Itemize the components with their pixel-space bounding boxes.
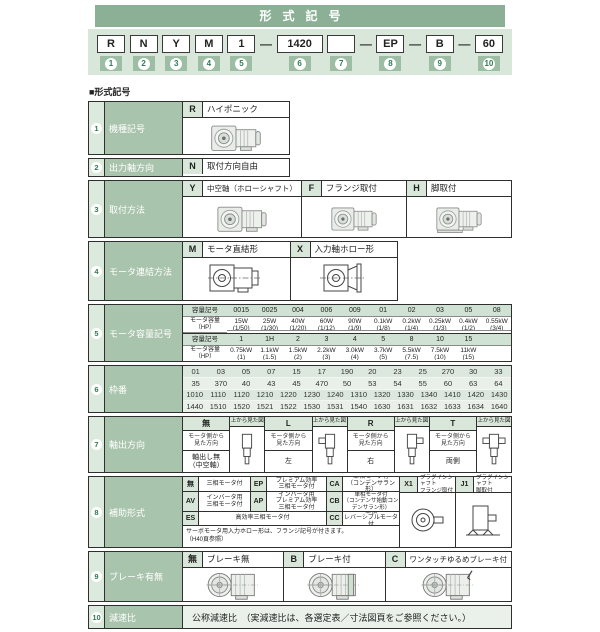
frame-number: 15 bbox=[284, 367, 309, 376]
brake-option-with: B ブレーキ付 bbox=[284, 552, 385, 601]
row-mounting-method: 3 取付方法 Y 中空軸（ホローシャフト） F フランジ取付 bbox=[88, 180, 512, 238]
capacity-code: 3 bbox=[312, 334, 340, 346]
frame-number: 23 bbox=[385, 367, 410, 376]
option-code: Y bbox=[183, 181, 203, 196]
frame-number: 25 bbox=[410, 367, 435, 376]
frame-number: 1530 bbox=[300, 402, 323, 411]
row-label: 出力軸方向 bbox=[105, 159, 183, 176]
capacity-value: 25W(1/30) bbox=[255, 317, 283, 331]
aux-code: X1 bbox=[400, 477, 418, 492]
top-view-caption: 上から見た図 bbox=[230, 417, 264, 427]
row-type-symbol: 1 機種記号 R ハイポニック bbox=[88, 101, 512, 155]
direction-value: 右 bbox=[348, 451, 394, 472]
aux-code: J1 bbox=[456, 477, 474, 492]
row-label: 取付方法 bbox=[105, 181, 183, 237]
code-seg-8: EP 8 bbox=[376, 35, 404, 71]
capacity-value: 0.4kW(1/2) bbox=[454, 317, 482, 331]
frame-number: 64 bbox=[486, 379, 511, 388]
capacity-value: 7.5kW(10) bbox=[426, 346, 454, 360]
frame-number: 1230 bbox=[300, 390, 323, 399]
row-number-9: 9 bbox=[89, 552, 105, 601]
top-view-caption: 上から見た図 bbox=[395, 417, 429, 427]
code-seg-3: Y 3 bbox=[162, 35, 190, 71]
aux-desc: 単相 レバーシブルモータ付 bbox=[343, 512, 399, 526]
option-code: F bbox=[302, 181, 322, 196]
aux-desc: 単相モータ付 （コンデンサ始動コンデンサラン形） bbox=[343, 492, 399, 512]
row-number-3: 3 bbox=[89, 181, 105, 237]
aux-desc: インバータ用 プレミアム効率 三相モータ付 bbox=[267, 492, 327, 512]
direction-option-both: T モータ側から 見た方向 両側 上から見た図 bbox=[430, 417, 511, 472]
option-code: M bbox=[183, 242, 203, 257]
capacity-value: 11kW(15) bbox=[454, 346, 482, 360]
one-touch-brake-motor-image bbox=[386, 568, 512, 601]
code-box-8: EP bbox=[376, 35, 404, 53]
code-box-4: M bbox=[195, 35, 223, 53]
frame-number: 470 bbox=[309, 379, 334, 388]
shaft-diagram-none bbox=[230, 427, 264, 472]
brake-option-one-touch: C ワンタッチゆるめブレーキ付 bbox=[386, 552, 512, 601]
row-label: 機種記号 bbox=[105, 102, 183, 154]
code-badge-1: 1 bbox=[100, 56, 122, 71]
option-desc: 取付方向自由 bbox=[203, 159, 262, 174]
direction-code: L bbox=[265, 417, 311, 431]
capacity-value: 2.2kW(3) bbox=[312, 346, 340, 360]
brake-option-none: 無 ブレーキ無 bbox=[183, 552, 284, 601]
coupling-option-hollow-input: X 入力軸ホロー形 bbox=[291, 242, 398, 300]
frame-number: 43 bbox=[259, 379, 284, 388]
code-badge-6: 6 bbox=[289, 56, 311, 71]
code-box-6: 1420 bbox=[277, 35, 323, 53]
row-label: モータ容量記号 bbox=[105, 305, 183, 361]
code-seg-2: N 2 bbox=[130, 35, 158, 71]
frame-number: 33 bbox=[486, 367, 511, 376]
hyponic-motor-image bbox=[183, 118, 289, 154]
capacity-code-header: 容量記号 bbox=[183, 334, 227, 346]
hollow-shaft-motor-image bbox=[183, 197, 301, 237]
dash-separator: — bbox=[260, 35, 272, 54]
frame-number: 370 bbox=[208, 379, 233, 388]
row-number-6: 6 bbox=[89, 366, 105, 412]
capacity-code: 0015 bbox=[227, 305, 255, 317]
capacity-value: 3.0kW(4) bbox=[341, 346, 369, 360]
aux-desc: 三相モータ付 bbox=[199, 477, 251, 492]
hollow-input-drawing bbox=[291, 258, 398, 300]
aux-code: EP bbox=[251, 477, 267, 492]
aux-code: CA bbox=[327, 477, 343, 492]
code-badge-4: 4 bbox=[198, 56, 220, 71]
option-desc: ブレーキ付 bbox=[304, 552, 355, 567]
mount-option-foot: H 脚取付 bbox=[407, 181, 511, 237]
frame-number: 01 bbox=[183, 367, 208, 376]
code-badge-7: 7 bbox=[330, 56, 352, 71]
row-motor-capacity-symbol: 5 モータ容量記号 容量記号 0015002500400600901020305… bbox=[88, 304, 512, 362]
capacity-code: 05 bbox=[454, 305, 482, 317]
frame-number: 40 bbox=[233, 379, 258, 388]
frame-number: 1520 bbox=[230, 402, 253, 411]
top-view-caption: 上から見た図 bbox=[313, 417, 347, 427]
row-shaft-output-direction: 7 軸出方向 無 モータ側から 見た方向 軸出し無 （中空軸） 上から見た図 bbox=[88, 416, 512, 473]
frame-number: 53 bbox=[360, 379, 385, 388]
mount-option-flange: F フランジ取付 bbox=[302, 181, 407, 237]
option-desc: フランジ取付 bbox=[322, 181, 381, 196]
option-desc: モータ直結形 bbox=[203, 242, 262, 257]
row-output-shaft-direction: 2 出力軸方向 N 取付方向自由 bbox=[88, 158, 512, 177]
section-label: ■形式記号 bbox=[89, 85, 512, 98]
row-label: ブレーキ有無 bbox=[105, 552, 183, 601]
view-from-motor-label: モータ側から 見た方向 bbox=[265, 431, 311, 451]
row-number-5: 5 bbox=[89, 305, 105, 361]
direction-option-none: 無 モータ側から 見た方向 軸出し無 （中空軸） 上から見た図 bbox=[183, 417, 265, 472]
frame-number: 1634 bbox=[464, 402, 487, 411]
code-box-10: 60 bbox=[475, 35, 503, 53]
capacity-code: 8 bbox=[397, 334, 425, 346]
code-badge-3: 3 bbox=[165, 56, 187, 71]
frame-number: 1632 bbox=[417, 402, 440, 411]
option-code: 無 bbox=[183, 552, 203, 567]
frame-number: 1010 bbox=[183, 390, 206, 399]
direction-option-left: L モータ側から 見た方向 左 上から見た図 bbox=[265, 417, 347, 472]
shaft-diagram-left bbox=[313, 427, 347, 472]
frame-number: 1640 bbox=[487, 402, 510, 411]
aux-code: ES bbox=[183, 512, 199, 526]
code-seg-10: 60 10 bbox=[475, 35, 503, 71]
mount-option-hollow-shaft: Y 中空軸（ホローシャフト） bbox=[183, 181, 302, 237]
aux-code: CB bbox=[327, 492, 343, 512]
capacity-code: 4 bbox=[341, 334, 369, 346]
frame-number: 17 bbox=[309, 367, 334, 376]
capacity-value-header: モータ容量 （HP） bbox=[183, 317, 227, 333]
capacity-value: 0.55kW(3/4) bbox=[483, 317, 511, 331]
capacity-code: 006 bbox=[312, 305, 340, 317]
frame-number: 1521 bbox=[253, 402, 276, 411]
option-code: B bbox=[284, 552, 304, 567]
capacity-table-large: 容量記号 11H234581015 モータ容量 （HP） 0.75kW(1)1.… bbox=[183, 334, 511, 361]
option-code: R bbox=[183, 102, 203, 117]
option-code: N bbox=[183, 159, 203, 174]
direction-code: T bbox=[430, 417, 476, 431]
code-badge-5: 5 bbox=[230, 56, 252, 71]
page: 形式記号 R 1 N 2 Y 3 M 4 1 5 — 1420 6 7 bbox=[88, 5, 512, 632]
capacity-value: 0.75kW(1) bbox=[227, 346, 255, 360]
aux-code: AP bbox=[251, 492, 267, 512]
row-label: 軸出方向 bbox=[105, 417, 183, 472]
direction-value: 軸出し無 （中空軸） bbox=[183, 451, 229, 472]
aux-desc: プラグインシャフト フランジ取付 bbox=[418, 477, 455, 492]
row-number-8: 8 bbox=[89, 477, 105, 547]
capacity-code: 1 bbox=[227, 334, 255, 346]
row-frame-number: 6 枠番 0103050715171902023252703033 353704… bbox=[88, 365, 512, 413]
capacity-code: 01 bbox=[369, 305, 397, 317]
frame-number: 1540 bbox=[347, 402, 370, 411]
frame-number: 190 bbox=[334, 367, 359, 376]
shaft-diagram-both bbox=[477, 427, 511, 472]
code-badge-9: 9 bbox=[429, 56, 451, 71]
frame-number: 1420 bbox=[464, 390, 487, 399]
frame-number: 1430 bbox=[487, 390, 510, 399]
row-brake: 9 ブレーキ有無 無 ブレーキ無 B ブレーキ付 bbox=[88, 551, 512, 602]
aux-code: 無 bbox=[183, 477, 199, 492]
row-label: 枠番 bbox=[105, 366, 183, 412]
direction-value: 両側 bbox=[430, 451, 476, 472]
frame-number: 1340 bbox=[417, 390, 440, 399]
brake-motor-image bbox=[284, 568, 384, 601]
code-seg-7: 7 bbox=[327, 35, 355, 71]
row-number-1: 1 bbox=[89, 102, 105, 154]
frame-number: 1120 bbox=[230, 390, 253, 399]
row-number-4: 4 bbox=[89, 242, 105, 300]
row-number-7: 7 bbox=[89, 417, 105, 472]
foot-mount-motor-image bbox=[407, 197, 511, 237]
aux-code: AV bbox=[183, 492, 199, 512]
frame-number: 1630 bbox=[370, 402, 393, 411]
top-view-caption: 上から見た図 bbox=[477, 417, 511, 427]
frame-number: 1110 bbox=[206, 390, 229, 399]
frame-number: 1210 bbox=[253, 390, 276, 399]
view-from-motor-label: モータ側から 見た方向 bbox=[348, 431, 394, 451]
option-desc: 脚取付 bbox=[427, 181, 461, 196]
frame-number: 05 bbox=[233, 367, 258, 376]
code-seg-4: M 4 bbox=[195, 35, 223, 71]
capacity-code: 5 bbox=[369, 334, 397, 346]
frame-number: 50 bbox=[334, 379, 359, 388]
auxiliary-grid: 無 三相モータ付 EP プレミアム効率 三相モータ付 CA 単相モータ付 （コン… bbox=[183, 477, 400, 547]
capacity-code: 2 bbox=[284, 334, 312, 346]
code-badge-10: 10 bbox=[478, 56, 500, 71]
model-code-panel: R 1 N 2 Y 3 M 4 1 5 — 1420 6 7 — EP bbox=[88, 29, 512, 75]
code-box-7 bbox=[327, 35, 355, 53]
frame-number: 30 bbox=[461, 367, 486, 376]
capacity-code bbox=[483, 334, 511, 346]
frame-number: 1631 bbox=[394, 402, 417, 411]
capacity-code: 004 bbox=[284, 305, 312, 317]
frame-number: 45 bbox=[284, 379, 309, 388]
capacity-table-small: 容量記号 001500250040060090102030508 モータ容量 （… bbox=[183, 305, 511, 333]
aux-desc: 単相モータ付 （コンデンサラン形） bbox=[343, 477, 399, 492]
capacity-code: 1H bbox=[255, 334, 283, 346]
frame-number: 1531 bbox=[324, 402, 347, 411]
dash-separator: — bbox=[409, 35, 421, 54]
option-desc: 中空軸（ホローシャフト） bbox=[203, 181, 301, 196]
capacity-value-header: モータ容量 （HP） bbox=[183, 346, 227, 361]
capacity-value: 15W(1/50) bbox=[227, 317, 255, 331]
row-auxiliary-type: 8 補助形式 無 三相モータ付 EP プレミアム効率 三相モータ付 CA 単相モ… bbox=[88, 476, 512, 548]
frame-number: 1410 bbox=[441, 390, 464, 399]
capacity-value: 0.25kW(1/3) bbox=[426, 317, 454, 331]
frame-number: 1220 bbox=[277, 390, 300, 399]
aux-option-plugin-flange: X1 プラグインシャフト フランジ取付 bbox=[400, 477, 456, 547]
row-motor-coupling-method: 4 モータ連結方法 M モータ直結形 bbox=[88, 241, 512, 301]
row-label: 補助形式 bbox=[105, 477, 183, 547]
code-box-9: B bbox=[426, 35, 454, 53]
frame-number: 20 bbox=[360, 367, 385, 376]
capacity-value: 90W(1/9) bbox=[341, 317, 369, 331]
option-desc: ワンタッチゆるめブレーキ付 bbox=[406, 552, 512, 567]
code-box-2: N bbox=[130, 35, 158, 53]
capacity-value: 40W(1/20) bbox=[284, 317, 312, 331]
capacity-code: 009 bbox=[341, 305, 369, 317]
frame-number-grid: 0103050715171902023252703033 35370404345… bbox=[183, 366, 511, 412]
aux-option-plugin-foot: J1 プラグインシャフト 脚取付 bbox=[456, 477, 511, 547]
capacity-code-header: 容量記号 bbox=[183, 305, 227, 317]
direction-value: 左 bbox=[265, 451, 311, 472]
option-code: X bbox=[291, 242, 311, 257]
aux-desc: プレミアム効率 三相モータ付 bbox=[267, 477, 327, 492]
option-desc: ハイポニック bbox=[203, 102, 262, 117]
capacity-code: 08 bbox=[483, 305, 511, 317]
code-seg-1: R 1 bbox=[97, 35, 125, 71]
direction-code: 無 bbox=[183, 417, 229, 431]
code-badge-2: 2 bbox=[133, 56, 155, 71]
frame-number: 1633 bbox=[441, 402, 464, 411]
capacity-value: 0.2kW(1/4) bbox=[397, 317, 425, 331]
view-from-motor-label: モータ側から 見た方向 bbox=[430, 431, 476, 451]
row-number-2: 2 bbox=[89, 159, 105, 176]
frame-number: 63 bbox=[461, 379, 486, 388]
code-seg-6: 1420 6 bbox=[277, 35, 323, 71]
frame-number: 60 bbox=[435, 379, 460, 388]
plugin-shaft-foot-drawing bbox=[456, 493, 511, 547]
direction-option-right: R モータ側から 見た方向 右 上から見た図 bbox=[348, 417, 430, 472]
dash-separator: — bbox=[360, 35, 372, 54]
option-code: C bbox=[386, 552, 406, 567]
direction-code: R bbox=[348, 417, 394, 431]
row-label: 減速比 bbox=[105, 606, 183, 628]
code-box-3: Y bbox=[162, 35, 190, 53]
row-number-10: 10 bbox=[89, 606, 105, 628]
aux-code: CC bbox=[327, 512, 343, 526]
page-title: 形式記号 bbox=[95, 5, 505, 27]
row-label: モータ連結方法 bbox=[105, 242, 183, 300]
row-reduction-ratio: 10 減速比 公称減速比 （実減速比は、各選定表／寸法図頁をご参照ください。） bbox=[88, 605, 512, 629]
capacity-value: 3.7kW(5) bbox=[369, 346, 397, 360]
capacity-value: 60W(1/12) bbox=[312, 317, 340, 331]
capacity-value: 1.5kW(2) bbox=[284, 346, 312, 360]
frame-number: 1522 bbox=[277, 402, 300, 411]
capacity-value: 1.1kW(1.5) bbox=[255, 346, 283, 360]
capacity-code: 15 bbox=[454, 334, 482, 346]
shaft-diagram-right bbox=[395, 427, 429, 472]
aux-desc: プラグインシャフト 脚取付 bbox=[474, 477, 511, 492]
frame-number: 1440 bbox=[183, 402, 206, 411]
frame-number: 07 bbox=[259, 367, 284, 376]
option-code: H bbox=[407, 181, 427, 196]
code-seg-9: B 9 bbox=[426, 35, 454, 71]
code-box-5: 1 bbox=[227, 35, 255, 53]
coupling-option-direct: M モータ直結形 bbox=[183, 242, 291, 300]
code-box-1: R bbox=[97, 35, 125, 53]
frame-number: 1310 bbox=[347, 390, 370, 399]
option-desc: ブレーキ無 bbox=[203, 552, 254, 567]
brake-none-motor-image bbox=[183, 568, 283, 601]
capacity-code: 02 bbox=[397, 305, 425, 317]
aux-desc: インバータ用 三相モータ付 bbox=[199, 492, 251, 512]
dash-separator: — bbox=[458, 35, 470, 54]
plugin-shaft-flange-drawing bbox=[400, 493, 455, 547]
capacity-code: 0025 bbox=[255, 305, 283, 317]
frame-number: 270 bbox=[435, 367, 460, 376]
frame-number: 1240 bbox=[324, 390, 347, 399]
flange-mount-motor-image bbox=[302, 197, 406, 237]
frame-number: 55 bbox=[410, 379, 435, 388]
capacity-value: 5.5kW(7.5) bbox=[397, 346, 425, 360]
direct-coupling-drawing bbox=[183, 258, 290, 300]
code-seg-5: 1 5 bbox=[227, 35, 255, 71]
servo-note: サーボモータ用入力ホロー形は、フランジ記号が付きます。 （H40頁参照） bbox=[183, 526, 399, 547]
frame-number: 35 bbox=[183, 379, 208, 388]
capacity-code: 03 bbox=[426, 305, 454, 317]
reduction-ratio-note: 公称減速比 （実減速比は、各選定表／寸法図頁をご参照ください。） bbox=[183, 606, 511, 628]
frame-number: 1510 bbox=[206, 402, 229, 411]
option-desc: 入力軸ホロー形 bbox=[311, 242, 379, 257]
aux-desc: 高効率三相モータ付 bbox=[199, 512, 327, 526]
capacity-code: 10 bbox=[426, 334, 454, 346]
capacity-value bbox=[483, 346, 511, 360]
frame-number: 03 bbox=[208, 367, 233, 376]
frame-number: 1330 bbox=[394, 390, 417, 399]
capacity-value: 0.1kW(1/8) bbox=[369, 317, 397, 331]
frame-number: 1320 bbox=[370, 390, 393, 399]
frame-number: 54 bbox=[385, 379, 410, 388]
view-from-motor-label: モータ側から 見た方向 bbox=[183, 431, 229, 451]
code-badge-8: 8 bbox=[379, 56, 401, 71]
